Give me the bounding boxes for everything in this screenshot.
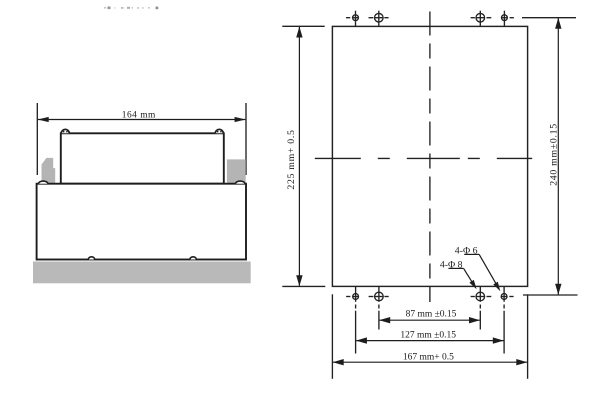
svg-text:225 mm+ 0.5: 225 mm+ 0.5	[286, 129, 297, 189]
svg-text:164 mm: 164 mm	[122, 110, 156, 120]
svg-text:87 mm ±0.15: 87 mm ±0.15	[406, 310, 457, 320]
svg-text:240 mm±0.15: 240 mm±0.15	[548, 123, 559, 186]
svg-text:127 mm ±0.15: 127 mm ±0.15	[400, 330, 456, 340]
svg-text:167 mm+ 0.5: 167 mm+ 0.5	[403, 353, 454, 363]
